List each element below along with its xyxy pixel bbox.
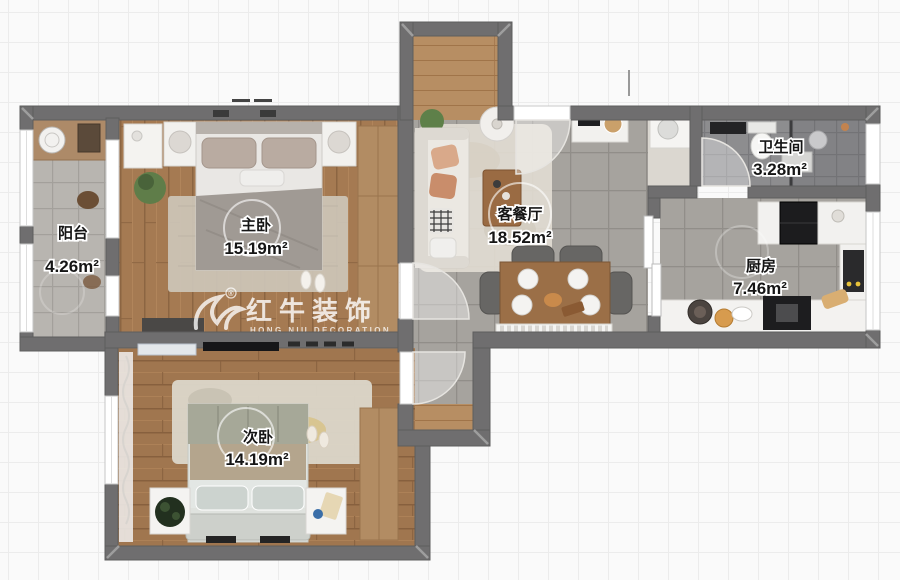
bed-base	[206, 536, 236, 543]
oven	[843, 250, 864, 292]
wall-kitchen-left	[648, 316, 660, 332]
master-door-leaf	[400, 263, 413, 319]
living-dining-label: 客餐厅	[496, 205, 542, 223]
wall-light	[260, 110, 276, 117]
plant-leaves	[160, 502, 170, 512]
nightstand-left-rug	[169, 131, 191, 153]
wall-bathroom-left	[690, 106, 702, 186]
second-bed-headboard	[186, 514, 310, 540]
plate	[518, 269, 538, 289]
master-pillow-left	[202, 138, 256, 168]
potted-plant-dark	[155, 497, 185, 527]
scale-mark	[254, 99, 272, 102]
balcony-pot	[83, 275, 101, 289]
mug	[313, 509, 323, 519]
vanity-desk	[124, 124, 162, 168]
kitchen-counter-top	[758, 202, 780, 244]
sofa-cushion-rust	[428, 172, 457, 199]
wall-master-living-divider	[398, 319, 413, 352]
living-dining-area: 18.52m²	[488, 228, 552, 247]
kitchen-label: 厨房	[746, 257, 776, 275]
second-bedroom-area: 14.19m²	[225, 450, 289, 469]
watermark-brand: 红牛装饰	[246, 296, 378, 326]
wall-right	[866, 184, 880, 212]
balcony-label: 阳台	[58, 224, 88, 242]
second-bedroom-label: 次卧	[243, 428, 273, 446]
slipper	[301, 271, 311, 289]
master-bedroom-label: 主卧	[241, 216, 271, 234]
wall-entry-right	[498, 22, 512, 120]
plate	[568, 269, 588, 289]
wall-second-bedroom-left	[105, 484, 118, 546]
wall-hallway-right	[473, 348, 490, 430]
wall-balcony-partition	[106, 238, 119, 276]
wall-bathroom-kitchen-divider	[648, 186, 697, 198]
vanity-mirror	[132, 131, 142, 141]
wall-balcony-partition	[106, 118, 119, 140]
wall-kitchen-left	[648, 198, 660, 218]
kitchen-counter-corner	[818, 202, 866, 244]
wall-entry-top	[400, 22, 512, 36]
kitchen-sink	[732, 307, 752, 321]
coffee-cup	[502, 192, 510, 200]
master-pillow-small	[240, 170, 284, 186]
cooktop-grate	[776, 304, 798, 322]
toilet-tank	[748, 122, 776, 133]
slipper	[315, 274, 325, 292]
wall-second-bedroom-bottom	[105, 546, 430, 560]
wall-second-bedroom-right	[415, 446, 430, 546]
bathroom-label: 卫生间	[758, 138, 803, 156]
kitchen-area: 7.46m²	[733, 279, 787, 298]
master-bedroom-area: 15.19m²	[224, 239, 288, 258]
wall-bathroom-kitchen-divider	[748, 186, 866, 198]
air-conditioner	[138, 344, 196, 355]
oven-knob	[856, 282, 861, 287]
entry-hall-floor	[413, 36, 498, 120]
master-bed-headboard	[196, 122, 322, 134]
kitchen-sliding-door-panel	[644, 216, 653, 268]
hallway-wood-nook-floor	[413, 404, 473, 430]
slipper	[307, 426, 317, 442]
nightstand-right-rug	[328, 131, 350, 153]
storage-box	[78, 124, 100, 152]
wall-balcony-bottom	[20, 337, 118, 351]
robot-vacuum-center	[694, 306, 706, 318]
wall-entry-left	[400, 22, 413, 120]
washing-machine	[39, 127, 65, 153]
balcony-plant	[77, 191, 99, 209]
wall-living-kitchen-bottom	[473, 332, 880, 348]
balcony-area: 4.26m²	[45, 257, 99, 276]
balcony-window	[106, 276, 119, 316]
wall-top-left	[20, 106, 405, 120]
floorplan-drawing: ® 红牛装饰 HONG NIU DECORATION	[0, 0, 900, 580]
wall-top-right	[498, 106, 516, 120]
plant-leaves	[172, 512, 180, 520]
wall-master-living-divider	[398, 106, 413, 263]
bread-basket	[544, 293, 562, 307]
wall-light	[213, 110, 229, 117]
sofa-backrest	[415, 128, 428, 268]
sofa-armrest-top	[415, 128, 469, 140]
fruit-bowl	[715, 309, 733, 327]
slipper	[319, 432, 329, 448]
tv	[203, 342, 279, 351]
master-plant-leaves	[138, 174, 154, 190]
second-pillow-left	[196, 486, 248, 510]
coffee-cup	[493, 180, 501, 188]
master-pillow-right	[262, 138, 316, 168]
second-pillow-right	[252, 486, 304, 510]
bed-base	[260, 536, 290, 543]
oven-knob	[847, 282, 852, 287]
floor-drain-shower	[809, 131, 827, 149]
scale-mark	[232, 99, 250, 102]
bath-accessory	[841, 123, 849, 131]
registered-mark: ®	[228, 290, 234, 298]
plate	[512, 295, 532, 315]
sofa-cushion-white	[430, 238, 456, 258]
bathroom-window	[866, 124, 880, 184]
floorplan-canvas: ® 红牛装饰 HONG NIU DECORATION	[0, 0, 900, 580]
wall-top-right	[570, 106, 880, 120]
bathroom-area: 3.28m²	[753, 160, 807, 179]
dimension-line	[628, 70, 630, 96]
wall-second-bedroom-left	[105, 348, 118, 396]
bath-mat	[710, 122, 746, 134]
kettle	[832, 210, 844, 222]
wash-basin	[658, 119, 678, 139]
entry-door-leaf	[514, 106, 570, 120]
kitchen-sliding-door-panel	[652, 264, 661, 316]
second-bedroom-door-leaf	[400, 352, 413, 404]
balcony-door-window	[106, 140, 119, 238]
